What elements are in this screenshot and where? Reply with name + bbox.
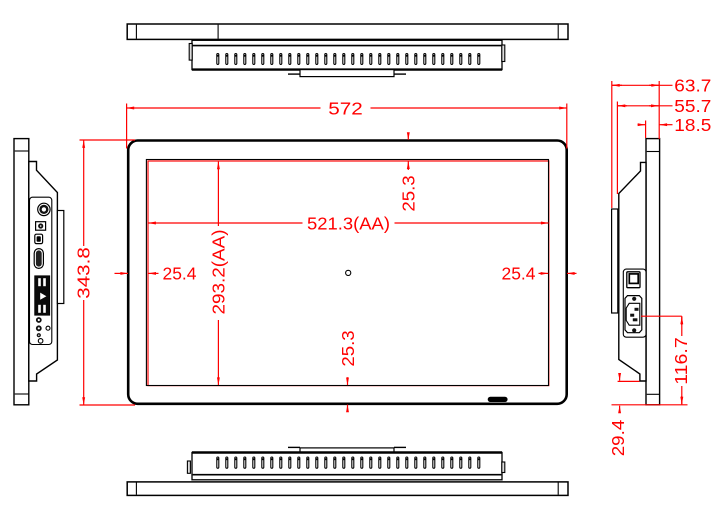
svg-text:116.7: 116.7 bbox=[671, 337, 691, 385]
svg-text:25.4: 25.4 bbox=[163, 264, 197, 284]
svg-text:25.3: 25.3 bbox=[338, 330, 358, 366]
svg-text:521.3(AA): 521.3(AA) bbox=[307, 213, 390, 233]
svg-text:25.3: 25.3 bbox=[399, 175, 419, 211]
svg-text:55.7: 55.7 bbox=[674, 96, 711, 116]
svg-text:18.5: 18.5 bbox=[674, 115, 711, 135]
svg-text:63.7: 63.7 bbox=[674, 76, 711, 96]
svg-text:293.2(AA): 293.2(AA) bbox=[209, 230, 229, 315]
svg-text:343.8: 343.8 bbox=[74, 247, 94, 299]
svg-text:29.4: 29.4 bbox=[608, 419, 628, 456]
svg-text:25.4: 25.4 bbox=[502, 264, 536, 284]
svg-text:572: 572 bbox=[328, 98, 363, 118]
